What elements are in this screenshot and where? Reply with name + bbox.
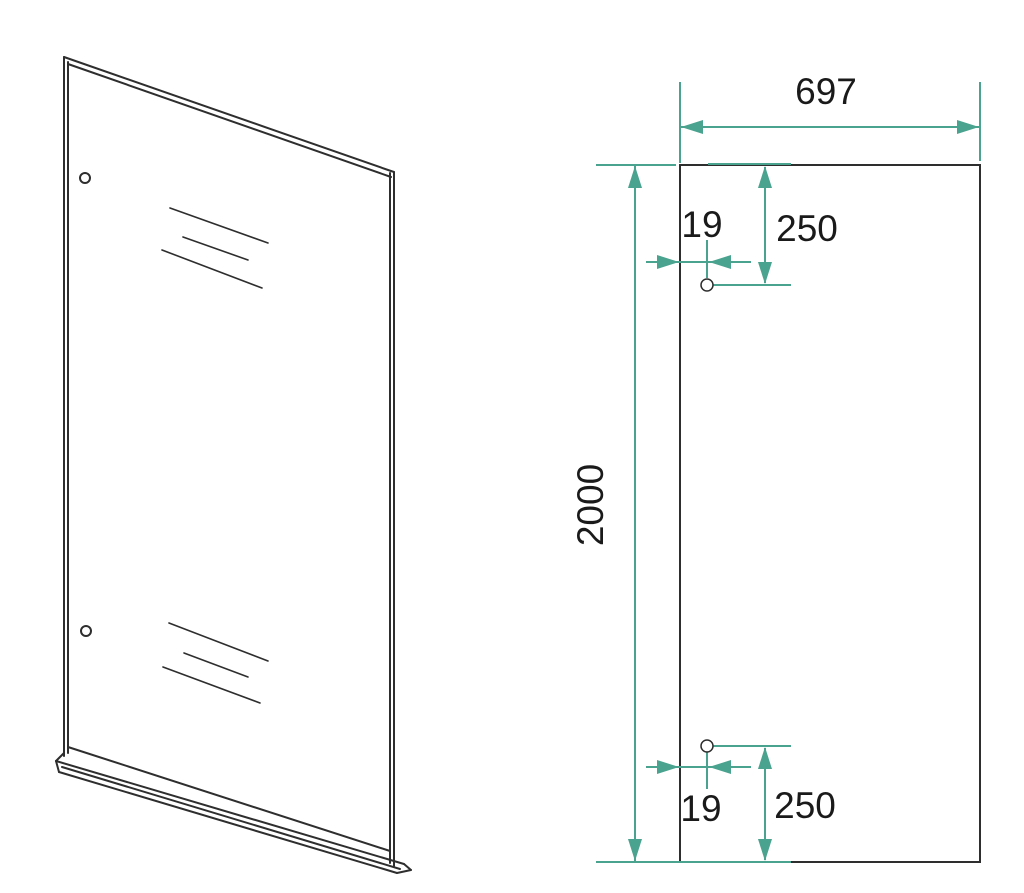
panel-width-label: 697	[795, 71, 857, 112]
mounting-hole-bottom-perspective	[81, 626, 91, 636]
arrowhead-down	[628, 839, 642, 861]
arrowhead-right	[657, 760, 679, 774]
base-middle-edge	[62, 767, 400, 869]
hole-top-inset-label: 19	[681, 204, 722, 245]
arrowhead-right	[957, 120, 979, 134]
mounting-hole-top-elevation	[701, 279, 713, 291]
base-top-edge	[56, 761, 404, 864]
arrowhead-right	[657, 255, 679, 269]
panel-height-label: 2000	[570, 464, 611, 546]
base-right-cap-lower	[397, 870, 411, 873]
hole-top-drop-label: 250	[776, 208, 838, 249]
technical-drawing-page: 697 2000 19 250 19 250	[0, 0, 1024, 893]
base-left-cap-upper	[56, 753, 64, 761]
arrowhead-up	[628, 166, 642, 188]
hole-bottom-inset-label: 19	[680, 788, 721, 829]
glass-top-edge-outer	[64, 57, 391, 171]
mounting-hole-top-perspective	[80, 173, 90, 183]
reflection-line	[183, 237, 248, 260]
hole-bottom-rise-label: 250	[774, 785, 836, 826]
base-bottom-edge	[59, 772, 397, 873]
reflection-lines-lower	[163, 623, 268, 703]
reflection-line	[163, 667, 260, 703]
glass-bottom-edge	[68, 747, 390, 851]
arrowhead-left	[681, 120, 703, 134]
elevation-view: 697 2000 19 250 19 250	[570, 71, 980, 862]
reflection-line	[162, 250, 262, 288]
glass-top-edge-inner	[68, 64, 391, 177]
panel-outline	[680, 165, 980, 862]
reflection-line	[169, 623, 268, 661]
reflection-line	[184, 653, 248, 677]
perspective-view	[56, 57, 411, 873]
technical-drawing-canvas: 697 2000 19 250 19 250	[0, 0, 1024, 893]
reflection-lines-upper	[162, 208, 268, 288]
mounting-hole-bottom-elevation	[701, 740, 713, 752]
base-right-cap-upper	[404, 864, 411, 870]
